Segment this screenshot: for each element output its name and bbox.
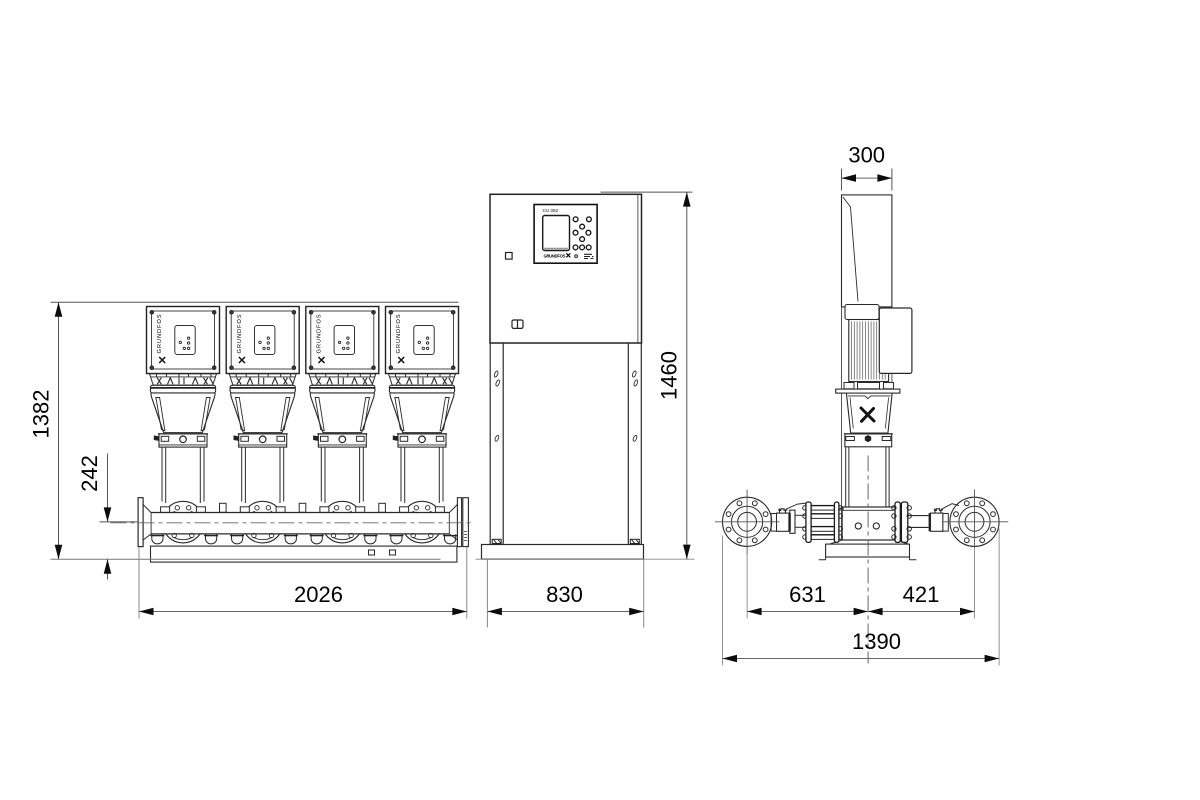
svg-text:1460: 1460 (657, 351, 682, 400)
svg-text:1382: 1382 (29, 390, 54, 439)
svg-text:631: 631 (789, 582, 826, 607)
svg-text:421: 421 (903, 582, 940, 607)
svg-text:830: 830 (546, 582, 583, 607)
svg-text:GRUNDFOS: GRUNDFOS (544, 254, 566, 259)
svg-text:CU 352: CU 352 (543, 208, 559, 213)
svg-text:2026: 2026 (294, 582, 343, 607)
svg-text:242: 242 (77, 455, 102, 492)
svg-text:1390: 1390 (852, 629, 901, 654)
svg-text:300: 300 (848, 143, 885, 168)
